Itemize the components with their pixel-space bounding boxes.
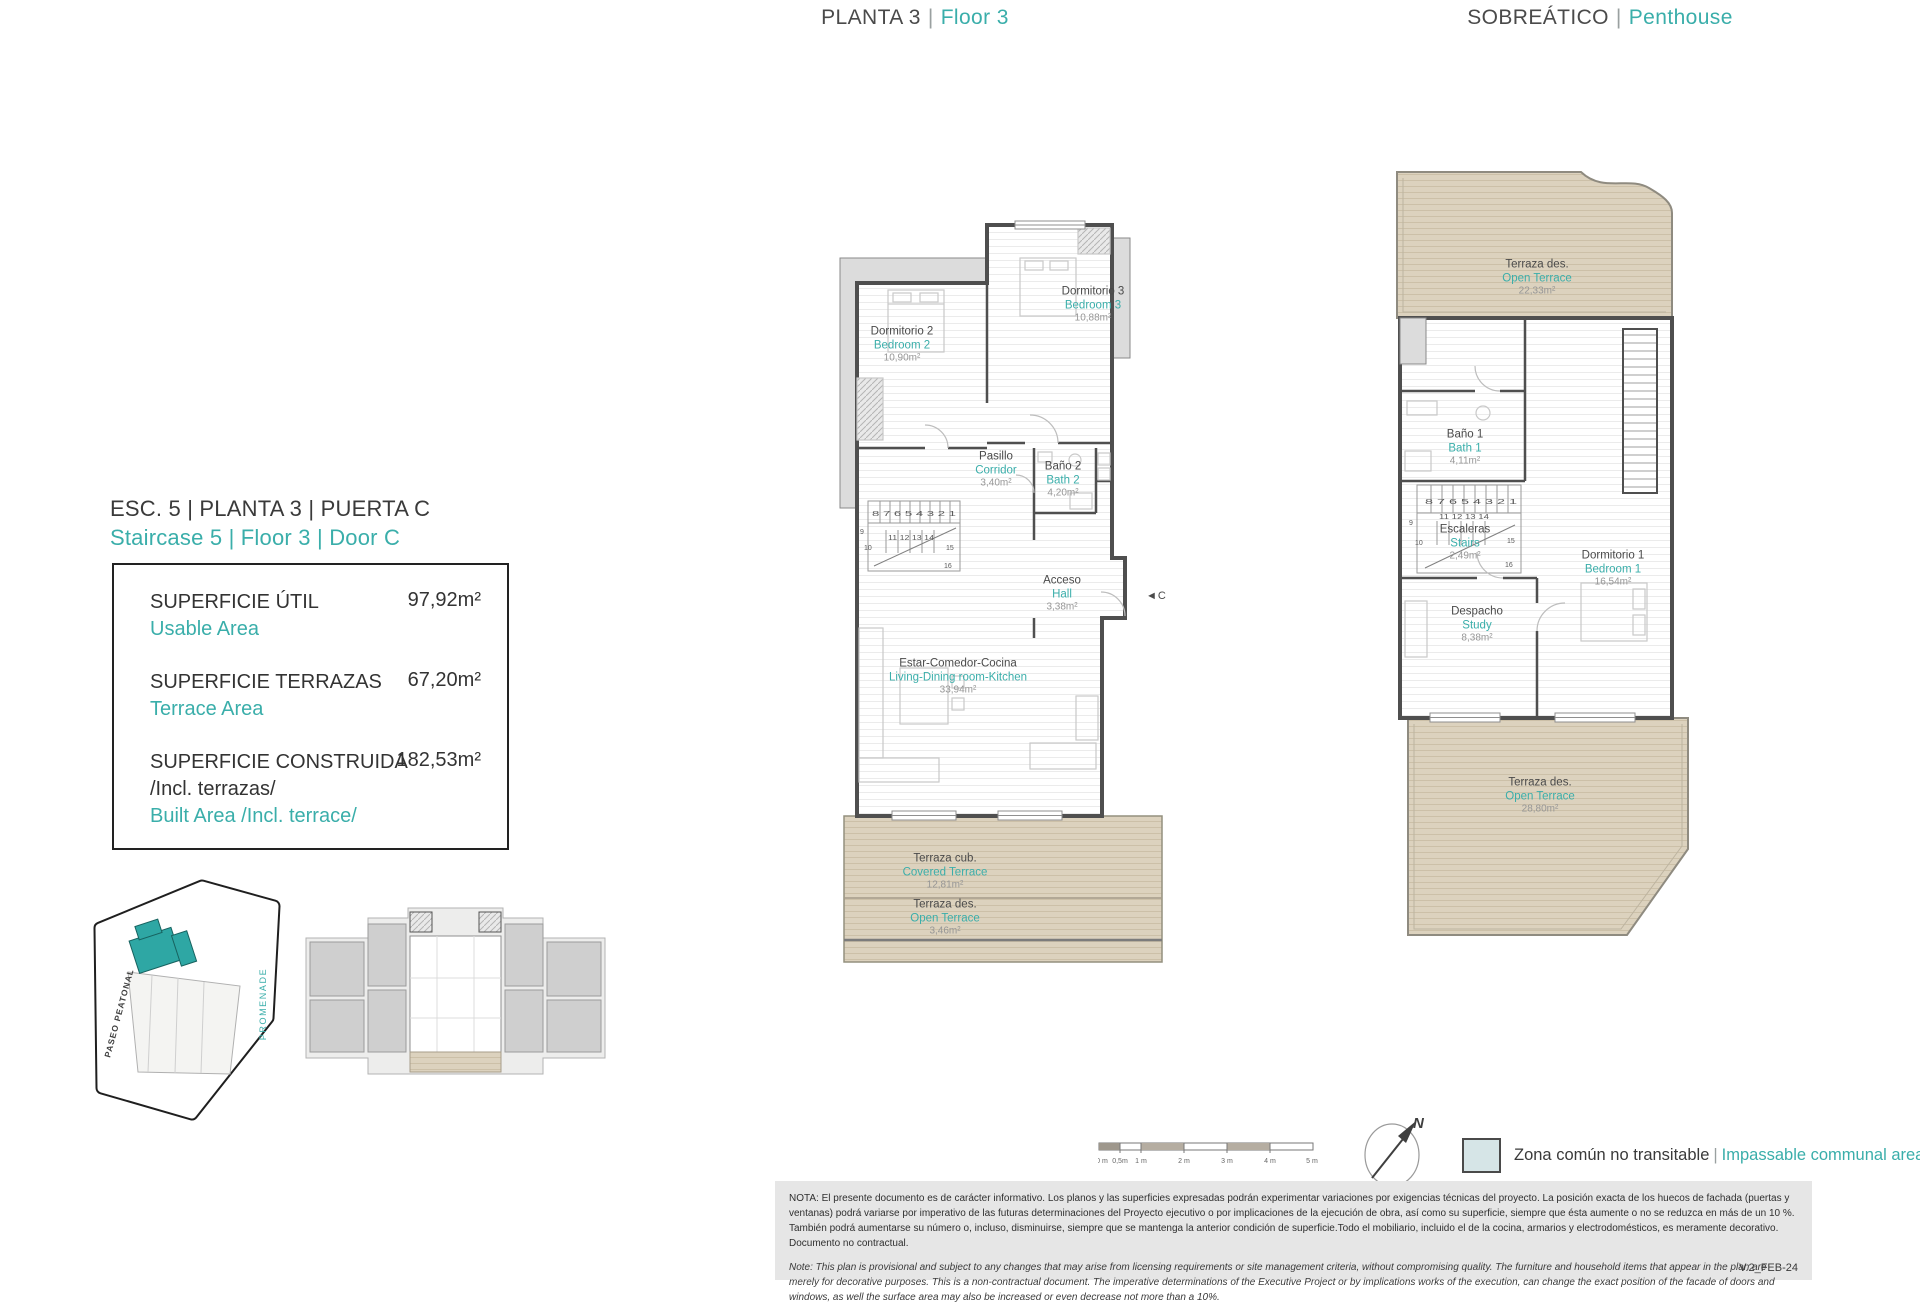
communal-zone-top-left [1400,318,1426,364]
usable-area-value: 97,92m² [408,589,481,612]
usable-area-label-en: Usable Area [150,616,481,643]
svg-text:10: 10 [1415,540,1423,547]
svg-text:11 12 13 14: 11 12 13 14 [1439,514,1489,521]
built-area-value: 182,53m² [397,749,482,772]
floor3-plan: 8 7 6 5 4 3 2 1 9 11 12 13 14 10 15 16 [830,198,1175,963]
room-label-top-terrace: Terraza des.Open Terrace22,33m² [1502,259,1571,298]
notes-panel: NOTA: El presente documento es de caráct… [775,1181,1812,1280]
penthouse-plan: 8 7 6 5 4 3 2 1 9 11 12 13 14 10 15 16 T… [1385,163,1690,943]
svg-text:1 m: 1 m [1135,1158,1147,1165]
floor3-terraces [844,816,1162,962]
penthouse-title-en: Penthouse [1629,6,1733,29]
usable-area-row: SUPERFICIE ÚTIL 97,92m² Usable Area [150,589,481,643]
key-plan-drawing [298,878,613,1118]
unit-title: ESC. 5 | PLANTA 3 | PUERTA C [110,496,430,522]
compass-icon: N [1356,1112,1434,1190]
room-label-open-terrace: Terraza des.Open Terrace3,46m² [910,899,979,938]
svg-text:16: 16 [944,563,952,570]
subject-unit [410,936,501,1072]
room-label-bottom-terrace: Terraza des.Open Terrace28,80m² [1505,777,1574,816]
legend-label-en: Impassable communal area [1722,1146,1920,1164]
built-area-row: SUPERFICIE CONSTRUIDA 182,53m² /Incl. te… [150,749,481,830]
room-label-covered-terrace: Terraza cub.Covered Terrace12,81m² [903,853,988,892]
legend-text: Zona común no transitable|Impassable com… [1514,1146,1920,1165]
svg-text:10: 10 [864,545,872,552]
svg-text:15: 15 [946,545,954,552]
penthouse-title: SOBREÁTICO|Penthouse [1400,6,1800,30]
room-label-hall: AccesoHall3,38m² [1043,575,1081,614]
complex-footprint [128,972,240,1074]
room-label-corridor: PasilloCorridor3,40m² [975,451,1017,490]
built-area-label2: /Incl. terrazas/ [150,776,481,803]
penthouse-wardrobe [1623,329,1657,493]
penthouse-title-es: SOBREÁTICO [1467,6,1609,29]
stair-core-right [479,912,501,932]
legend: Zona común no transitable|Impassable com… [1462,1138,1920,1173]
stair-core-left [410,912,432,932]
floor3-title-en: Floor 3 [941,6,1009,29]
compass-drawing: N [1356,1112,1434,1190]
terrace-area-label-en: Terrace Area [150,696,481,723]
communal-area-swatch [1462,1138,1501,1173]
svg-text:9: 9 [1409,520,1413,527]
svg-text:5 m: 5 m [1306,1158,1318,1165]
title-separator: | [1609,6,1629,29]
floor3-title: PLANTA 3|Floor 3 [700,6,1130,30]
surface-info-box: SUPERFICIE ÚTIL 97,92m² Usable Area SUPE… [112,563,509,850]
room-label-stairs: EscalerasStairs2,49m² [1440,524,1491,563]
scale-bar: 0 m 0,5m 1 m 2 m 3 m 4 m 5 m [1098,1140,1338,1168]
room-label-study: DespachoStudy8,38m² [1451,606,1503,645]
svg-text:0,5m: 0,5m [1112,1158,1128,1165]
built-area-label-en: Built Area /Incl. terrace/ [150,803,481,830]
room-label-living: Estar-Comedor-CocinaLiving-Dining room-K… [889,658,1027,697]
legend-separator: | [1709,1146,1721,1164]
entrance-marker: ◄C [1146,590,1167,602]
scale-bar-drawing: 0 m 0,5m 1 m 2 m 3 m 4 m 5 m [1098,1140,1338,1168]
note-english: Note: This plan is provisional and subje… [789,1260,1798,1305]
legend-label-es: Zona común no transitable [1514,1146,1709,1164]
plan-version: V.2_FEB-24 [1739,1262,1798,1274]
promenade-label: PROMENADE [258,968,268,1040]
room-label-bath1: Baño 1Bath 14,11m² [1447,429,1483,468]
floor3-title-es: PLANTA 3 [821,6,921,29]
site-plan-drawing: PROMENADE PASEO PEATONAL [80,876,290,1126]
terrace-area-row: SUPERFICIE TERRAZAS 67,20m² Terrace Area [150,669,481,723]
terrace-area-value: 67,20m² [408,669,481,692]
svg-text:8 7 6 5 4 3 2 1: 8 7 6 5 4 3 2 1 [872,511,956,518]
room-label-bedroom2: Dormitorio 2Bedroom 210,90m² [871,326,934,365]
svg-text:8 7 6 5 4 3 2 1: 8 7 6 5 4 3 2 1 [1425,499,1517,506]
site-plan: PROMENADE PASEO PEATONAL [80,876,290,1126]
title-separator: | [921,6,941,29]
room-label-bedroom3: Dormitorio 3Bedroom 310,88m² [1062,286,1125,325]
svg-text:11 12 13 14: 11 12 13 14 [888,535,934,542]
room-label-bedroom1: Dormitorio 1Bedroom 116,54m² [1582,550,1645,589]
svg-text:15: 15 [1507,538,1515,545]
svg-text:9: 9 [860,529,864,536]
penthouse-bottom-terrace [1408,718,1688,935]
key-plan [298,878,613,1118]
svg-text:16: 16 [1505,562,1513,569]
room-label-bath2: Baño 2Bath 24,20m² [1045,461,1081,500]
svg-text:3 m: 3 m [1221,1158,1233,1165]
note-spanish: NOTA: El presente documento es de caráct… [789,1191,1798,1251]
svg-text:2 m: 2 m [1178,1158,1190,1165]
unit-subtitle: Staircase 5 | Floor 3 | Door C [110,525,400,551]
svg-text:4 m: 4 m [1264,1158,1276,1165]
svg-text:0 m: 0 m [1098,1158,1108,1165]
compass-north-label: N [1413,1115,1425,1132]
